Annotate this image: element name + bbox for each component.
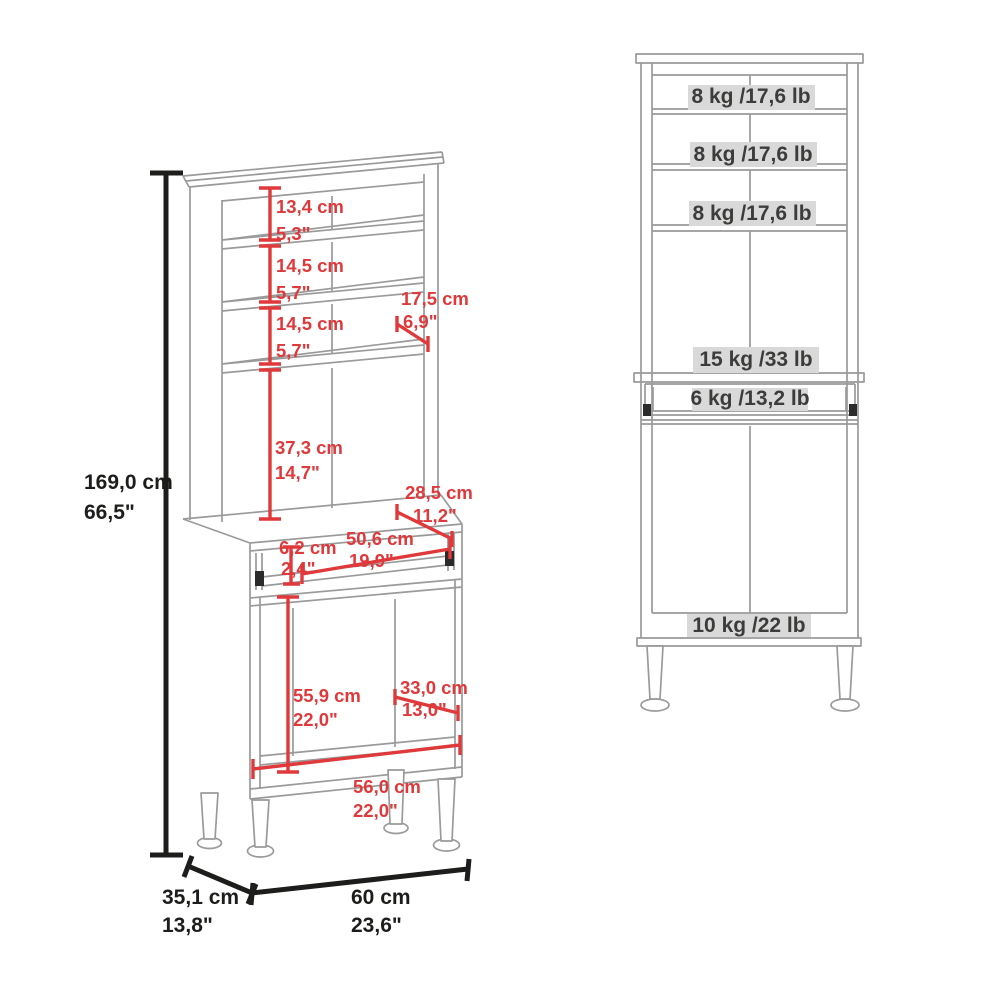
base-slab [637, 638, 861, 646]
capacity-text: 8 kg /17,6 lb [691, 85, 810, 108]
capacity-text: 8 kg /17,6 lb [693, 143, 812, 166]
tray-slide-right [849, 404, 857, 416]
overall-height-dimension: 169,0 cm 66,5" [84, 173, 183, 855]
dim-inch: 6,9" [403, 311, 438, 332]
base-depth-dimension: 35,1 cm 13,8" [162, 856, 256, 937]
depth-cm-label: 35,1 cm [162, 886, 239, 909]
dim-cm: 50,6 cm [346, 528, 414, 549]
dim-cm: 14,5 cm [276, 255, 344, 276]
base-width-dimension: 60 cm 23,6" [251, 859, 469, 937]
dimension-diagram: 169,0 cm 66,5" 35,1 cm 13,8" 60 cm 23,6"… [0, 0, 1000, 1000]
capacity-label-counter: 15 kg /33 lb [693, 347, 819, 373]
dim-hutch-opening: 37,3 cm 14,7" [259, 370, 343, 519]
height-inch-label: 66,5" [84, 501, 135, 524]
height-dim-line [150, 173, 183, 855]
depth-inch-label: 13,8" [162, 914, 213, 937]
capacity-label-shelf-3: 8 kg /17,6 lb [689, 201, 816, 226]
dim-shelf-gap-1: 14,5 cm 5,7" [259, 246, 344, 303]
dim-inch: 5,3" [276, 223, 311, 244]
dim-cm: 28,5 cm [405, 482, 473, 503]
capacity-text: 8 kg /17,6 lb [692, 202, 811, 225]
dim-cm: 37,3 cm [275, 437, 343, 458]
dim-inch: 5,7" [276, 282, 311, 303]
capacity-text: 10 kg /22 lb [692, 614, 805, 637]
tray-slide-left [643, 404, 651, 416]
dim-inch: 19,9" [349, 550, 394, 571]
dim-inch: 11,2" [413, 505, 457, 526]
capacity-text: 6 kg /13,2 lb [690, 387, 809, 410]
right-capacity-view: 8 kg /17,6 lb 8 kg /17,6 lb 8 kg /17,6 l… [634, 54, 864, 711]
hutch-top-slab [183, 152, 444, 187]
dim-cm: 56,0 cm [353, 776, 421, 797]
dim-cm: 55,9 cm [293, 685, 361, 706]
dim-cm: 17,5 cm [401, 288, 469, 309]
capacity-label-cabinet: 10 kg /22 lb [687, 614, 811, 637]
capacity-label-shelf-1: 8 kg /17,6 lb [688, 85, 815, 110]
dim-inch: 5,7" [276, 340, 311, 361]
dim-cm: 13,4 cm [276, 196, 344, 217]
dim-inch: 22,0" [353, 800, 398, 821]
dim-inch: 22,0" [293, 709, 338, 730]
hutch-shelves [222, 215, 424, 373]
dim-cabinet-opening-height: 55,9 cm 22,0" [277, 597, 361, 772]
width-inch-label: 23,6" [351, 914, 402, 937]
dim-inch: 13,0" [402, 699, 447, 720]
counter-slab [634, 373, 864, 382]
capacity-label-shelf-2: 8 kg /17,6 lb [690, 142, 817, 167]
leg-foot [831, 699, 859, 711]
dim-inch: 14,7" [275, 462, 320, 483]
dim-cm: 14,5 cm [276, 313, 344, 334]
dim-cm: 33,0 cm [400, 677, 468, 698]
height-cm-label: 169,0 cm [84, 471, 173, 494]
doors [652, 426, 847, 613]
dim-inch: 2,4" [281, 558, 316, 579]
cabinet-legs [647, 646, 853, 699]
tray-slide-left [255, 571, 264, 586]
width-cm-label: 60 cm [351, 886, 411, 909]
leg-foot [641, 699, 669, 711]
spec-sheet: 169,0 cm 66,5" 35,1 cm 13,8" 60 cm 23,6"… [0, 0, 1000, 1000]
capacity-label-tray: 6 kg /13,2 lb [690, 387, 809, 411]
dim-cm: 6,2 cm [279, 537, 337, 558]
dim-cabinet-width: 56,0 cm 22,0" [253, 735, 460, 821]
dim-tray-height: 6,2 cm 2,4" [279, 537, 337, 584]
dim-cabinet-depth: 33,0 cm 13,0" [395, 677, 468, 721]
capacity-text: 15 kg /33 lb [699, 348, 812, 371]
dim-shelf-depth: 17,5 cm 6,9" [397, 288, 469, 352]
